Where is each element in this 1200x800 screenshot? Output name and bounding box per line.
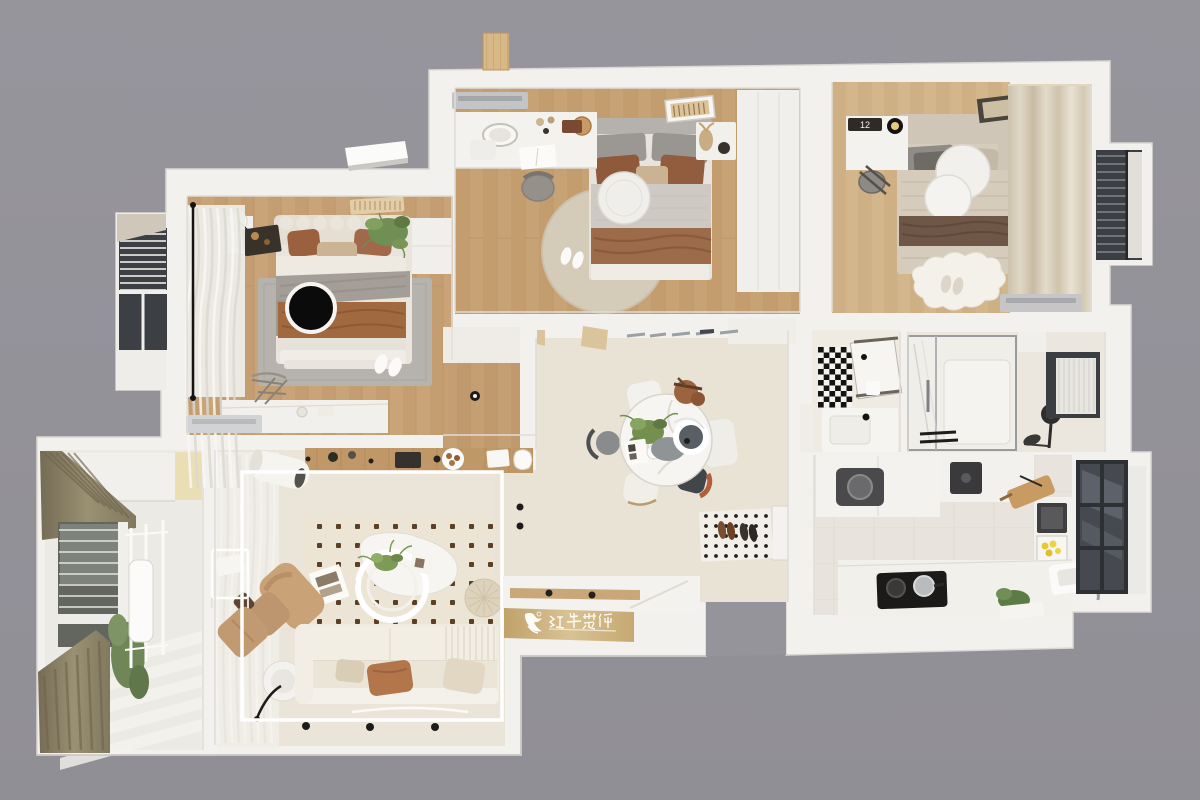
svg-text:12: 12	[860, 120, 870, 130]
